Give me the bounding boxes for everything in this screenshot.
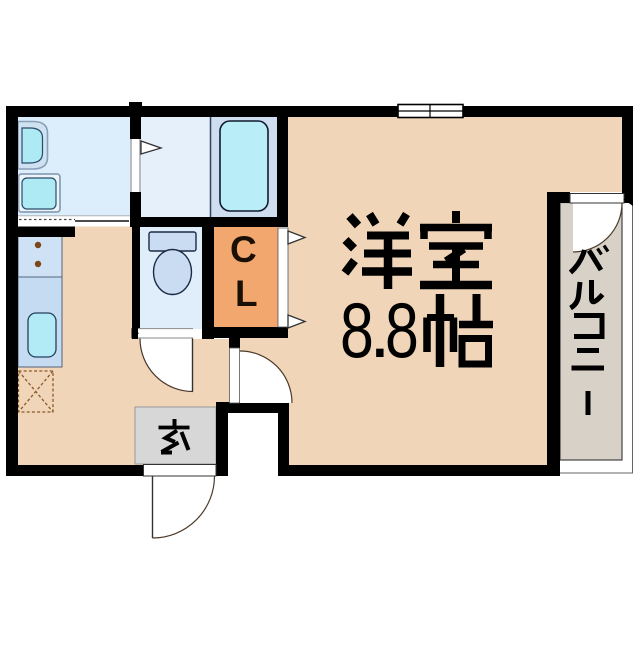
svg-text:L: L	[235, 273, 258, 314]
svg-text:8: 8	[385, 287, 419, 374]
svg-text:C: C	[230, 229, 257, 270]
